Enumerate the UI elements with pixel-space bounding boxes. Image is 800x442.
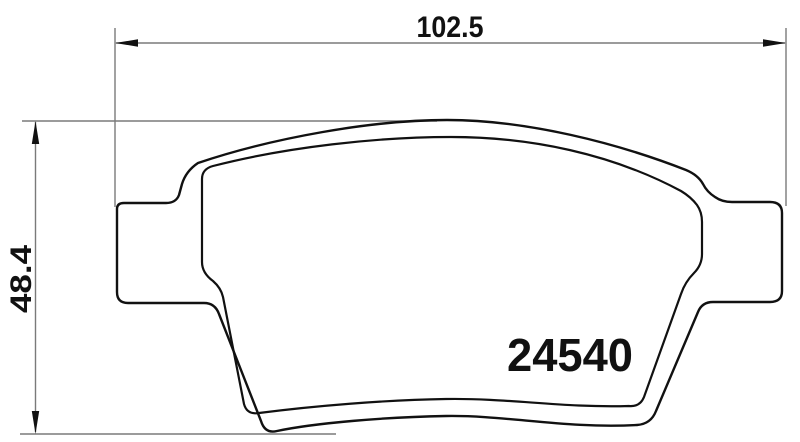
brake-pad-dimension-drawing: 102.5 48.4 24540 [0,0,800,442]
height-dim-arrow-bottom-icon [32,411,39,434]
width-dim-arrow-right-icon [763,39,786,46]
height-dim-label: 48.4 [5,245,38,313]
height-dim-arrow-top-icon [32,121,39,144]
width-dimension: 102.5 [115,11,786,207]
drawing-canvas: 102.5 48.4 24540 [0,0,800,442]
brake-pad-outer-contour [117,120,782,432]
part-number-label: 24540 [507,329,633,381]
width-dim-arrow-left-icon [115,39,138,46]
height-dimension: 48.4 [5,121,437,434]
width-dim-label: 102.5 [417,11,484,44]
